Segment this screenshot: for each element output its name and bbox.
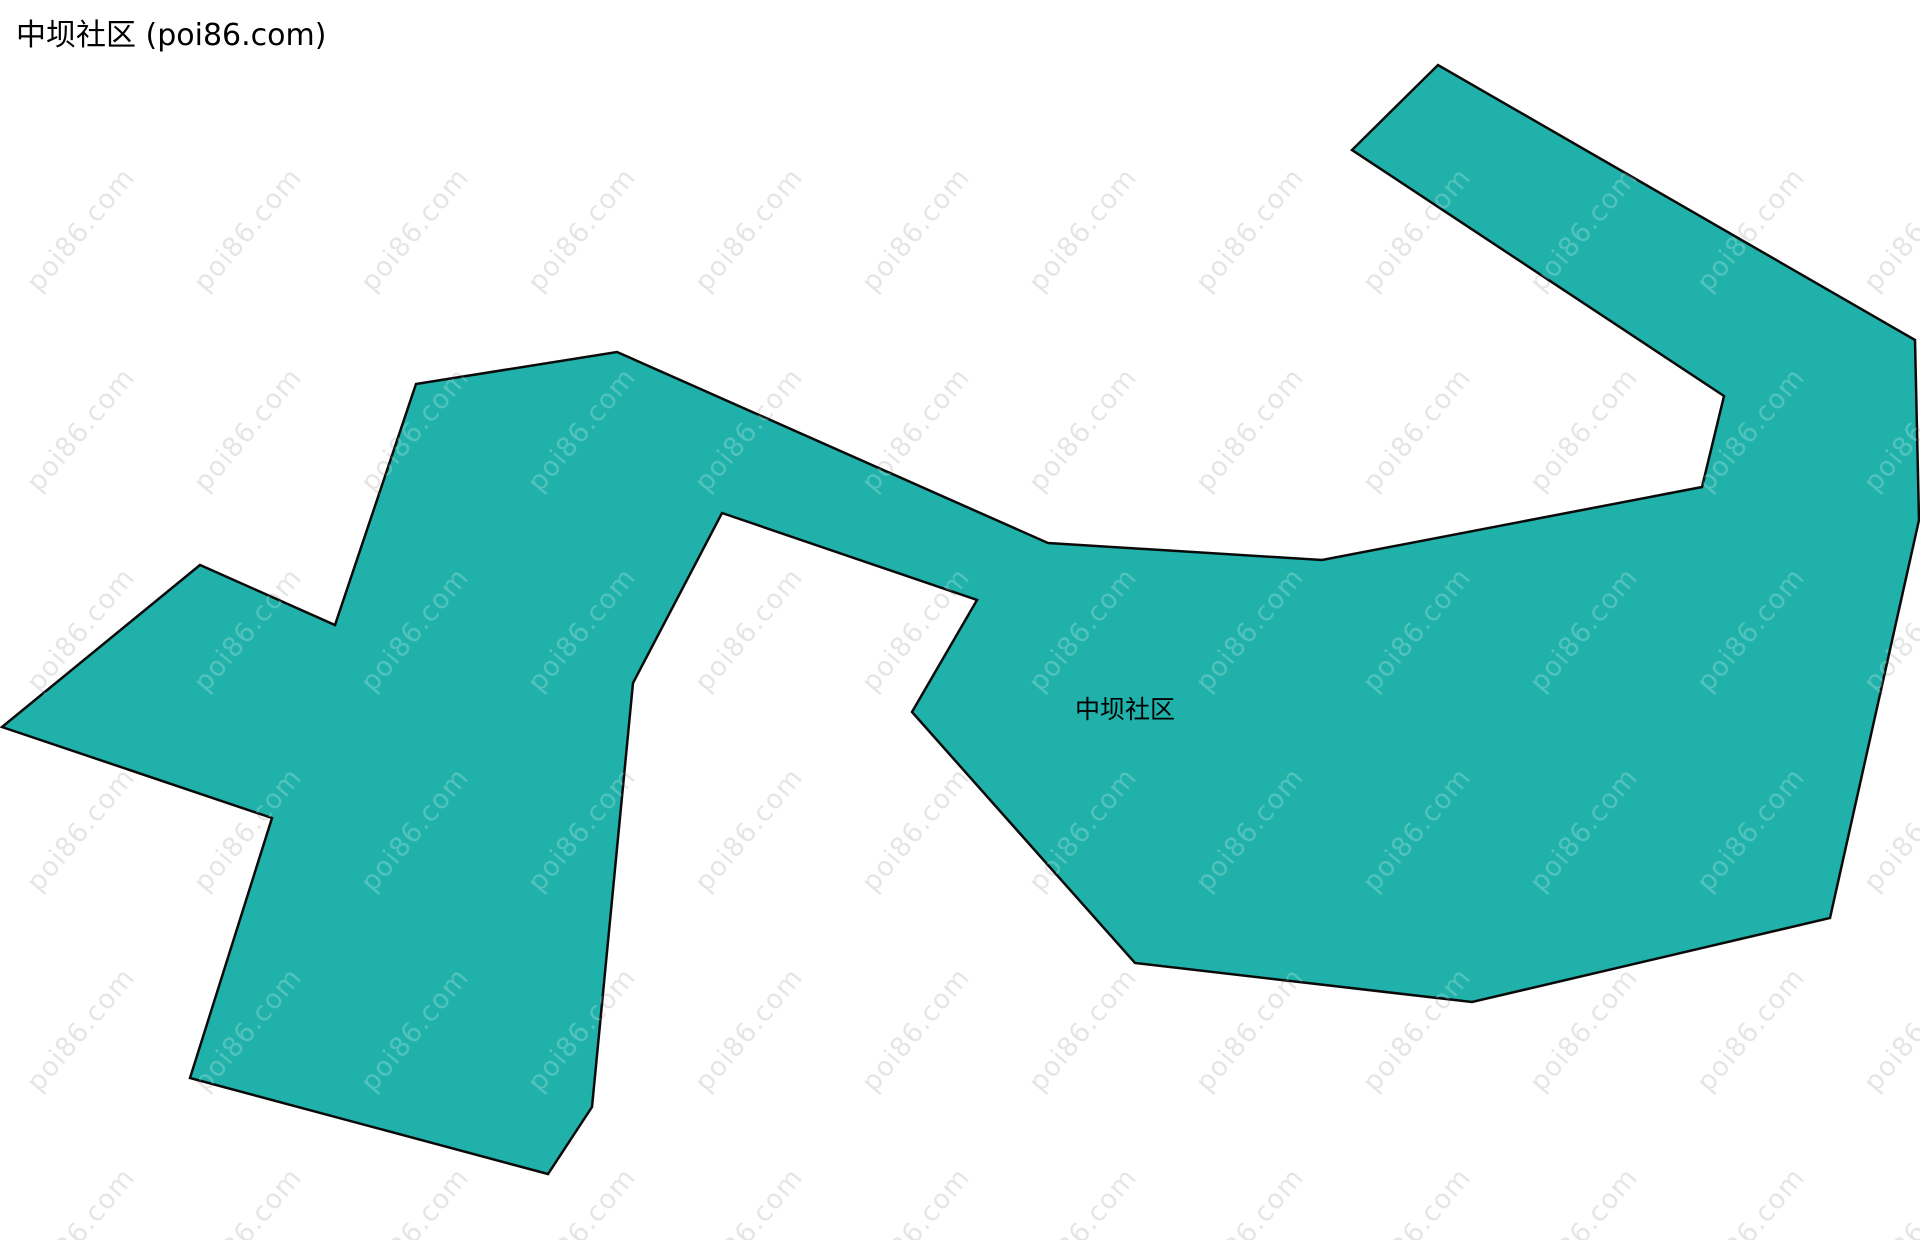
region-label: 中坝社区	[1075, 690, 1175, 726]
map-canvas: poi86.compoi86.compoi86.compoi86.compoi8…	[0, 0, 1920, 1240]
page-title: 中坝社区 (poi86.com)	[16, 10, 326, 54]
region-polygon	[2, 65, 1919, 1174]
region-map-svg	[0, 0, 1920, 1240]
